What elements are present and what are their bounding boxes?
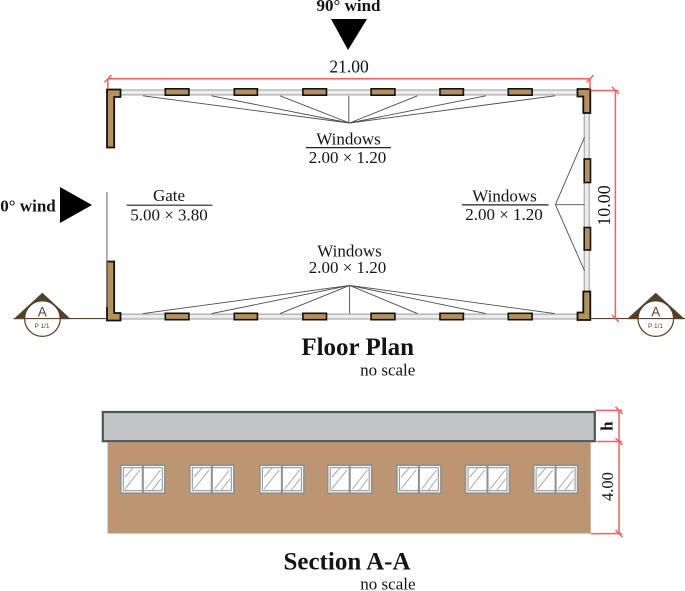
svg-text:Windows: Windows: [472, 187, 536, 206]
svg-text:21.00: 21.00: [329, 57, 369, 77]
svg-text:no scale: no scale: [360, 361, 415, 380]
svg-text:Floor Plan: Floor Plan: [301, 334, 414, 361]
svg-text:Windows: Windows: [316, 130, 380, 149]
svg-text:90° wind: 90° wind: [317, 0, 382, 15]
svg-text:5.00 × 3.80: 5.00 × 3.80: [130, 205, 208, 224]
svg-text:A: A: [38, 304, 47, 319]
svg-text:Section A-A: Section A-A: [283, 549, 410, 576]
svg-text:0° wind: 0° wind: [0, 197, 56, 216]
svg-text:10.00: 10.00: [594, 185, 614, 226]
svg-text:P 1/1: P 1/1: [34, 323, 49, 330]
svg-text:2.00 × 1.20: 2.00 × 1.20: [309, 258, 387, 277]
svg-text:2.00 × 1.20: 2.00 × 1.20: [309, 148, 387, 167]
svg-text:h: h: [598, 421, 617, 431]
svg-text:4.00: 4.00: [598, 472, 617, 501]
svg-text:no scale: no scale: [360, 574, 415, 591]
svg-text:Gate: Gate: [153, 186, 185, 205]
svg-text:A: A: [651, 304, 660, 319]
svg-text:P 1/1: P 1/1: [648, 323, 663, 330]
svg-text:2.00 × 1.20: 2.00 × 1.20: [465, 205, 543, 224]
